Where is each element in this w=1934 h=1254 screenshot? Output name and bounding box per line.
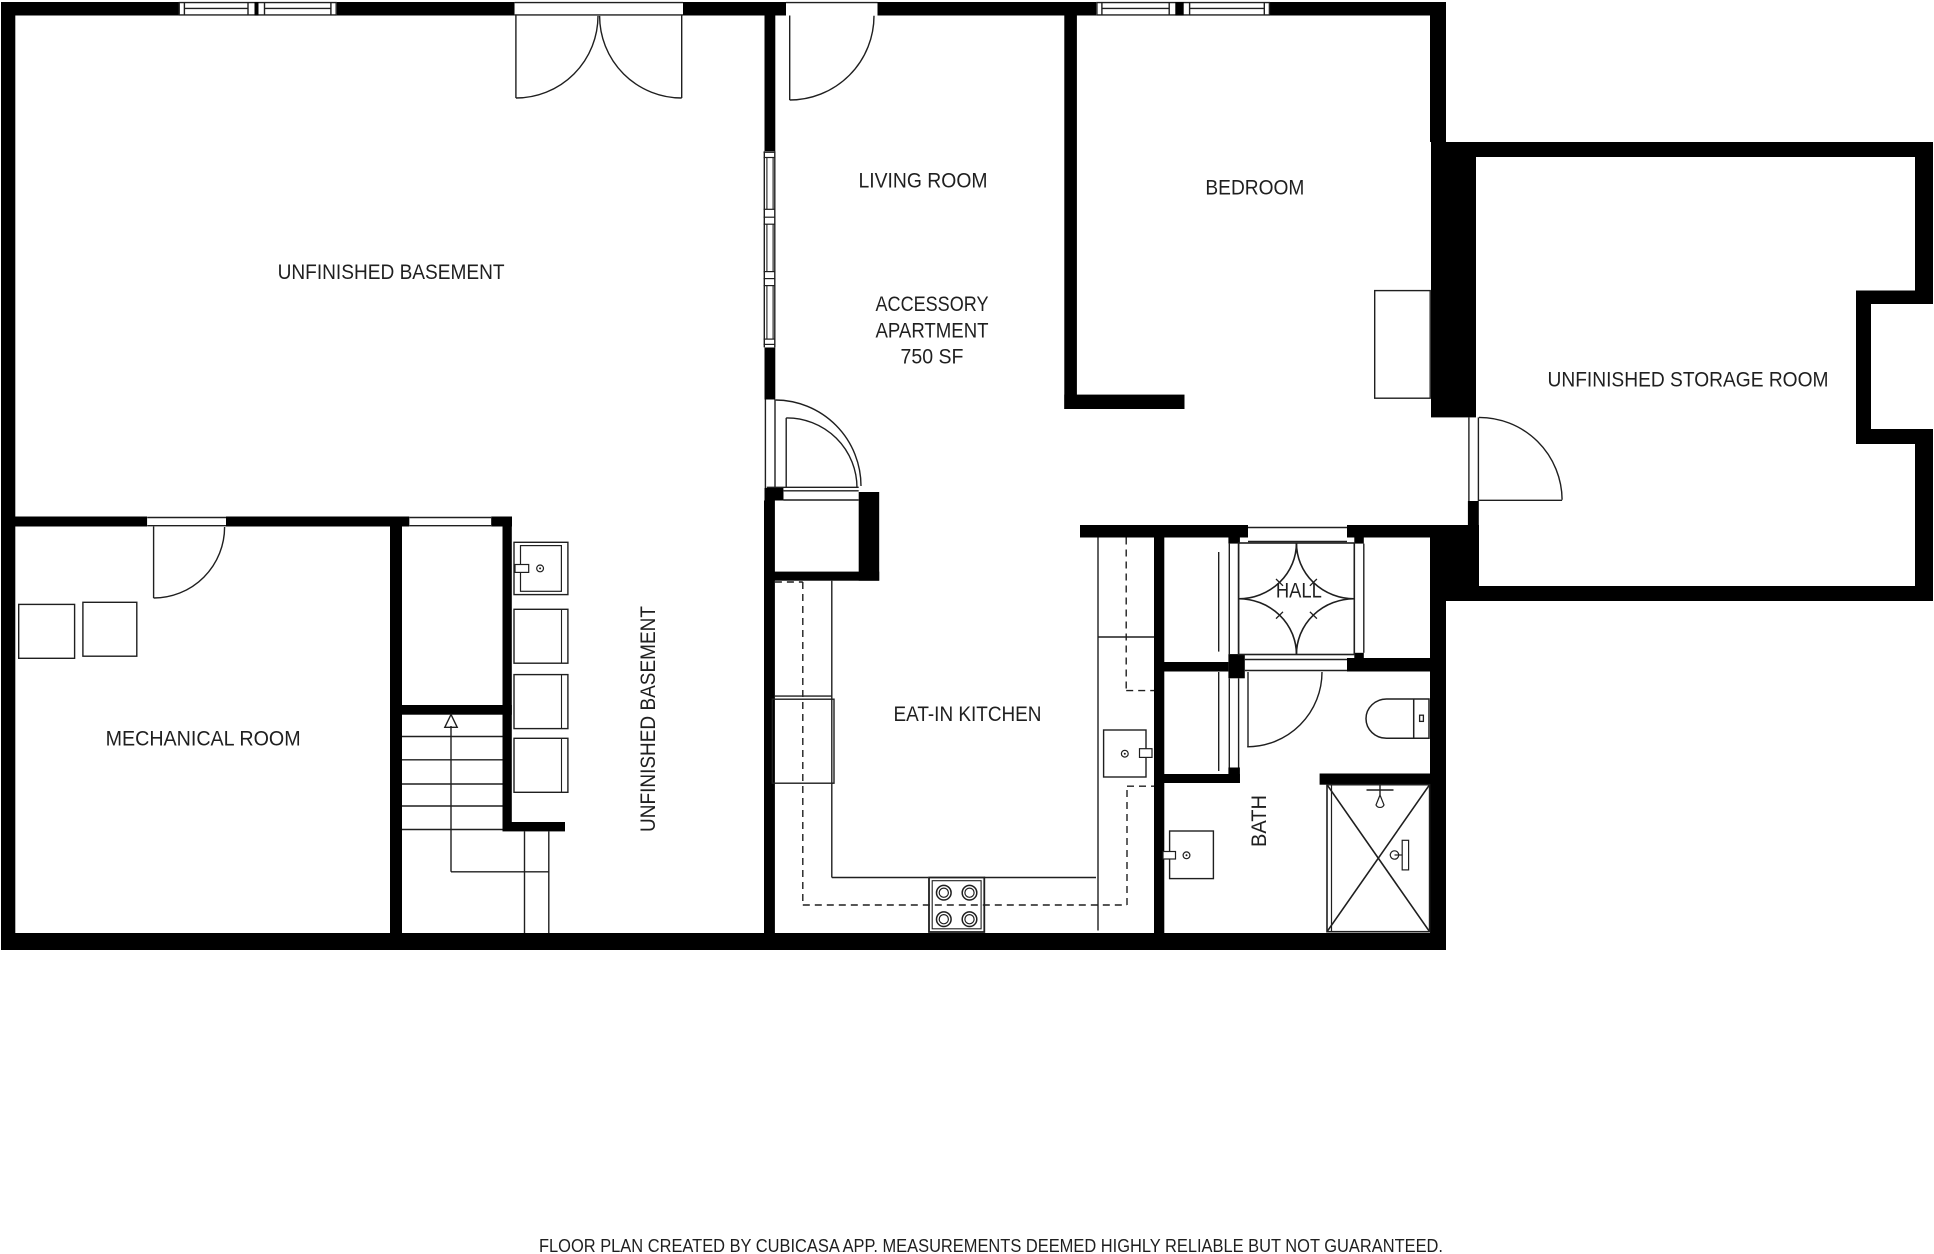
svg-text:BATH: BATH	[1247, 795, 1271, 847]
svg-text:APARTMENT: APARTMENT	[876, 318, 989, 342]
svg-text:FLOOR PLAN CREATED BY CUBICASA: FLOOR PLAN CREATED BY CUBICASA APP. MEAS…	[539, 1236, 1443, 1254]
svg-text:UNFINISHED BASEMENT: UNFINISHED BASEMENT	[636, 606, 660, 832]
svg-text:BEDROOM: BEDROOM	[1205, 176, 1304, 200]
svg-text:UNFINISHED BASEMENT: UNFINISHED BASEMENT	[278, 260, 505, 284]
svg-text:UNFINISHED STORAGE ROOM: UNFINISHED STORAGE ROOM	[1548, 368, 1829, 392]
svg-text:EAT-IN KITCHEN: EAT-IN KITCHEN	[894, 702, 1042, 726]
svg-text:ACCESSORY: ACCESSORY	[876, 292, 989, 316]
svg-text:LIVING ROOM: LIVING ROOM	[859, 168, 988, 192]
svg-text:MECHANICAL ROOM: MECHANICAL ROOM	[106, 726, 301, 750]
svg-text:HALL: HALL	[1276, 579, 1322, 603]
svg-text:750 SF: 750 SF	[901, 345, 964, 369]
